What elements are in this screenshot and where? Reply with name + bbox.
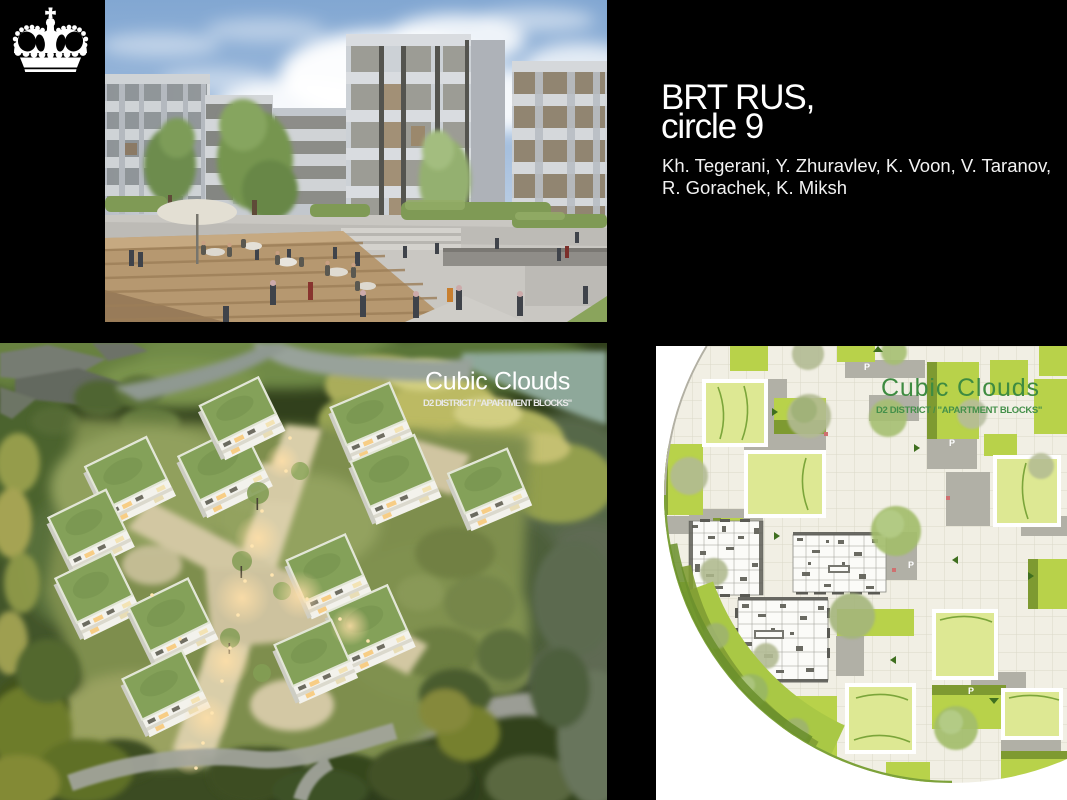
svg-text:Cubic Clouds: Cubic Clouds <box>425 368 570 396</box>
svg-text:P: P <box>864 362 870 372</box>
svg-text:Cubic Clouds: Cubic Clouds <box>881 374 1040 402</box>
svg-text:P: P <box>949 438 955 448</box>
svg-text:P: P <box>908 560 914 570</box>
svg-text:D2 DISTRICT / "APARTMENT BLOCK: D2 DISTRICT / "APARTMENT BLOCKS" <box>423 398 572 409</box>
svg-text:P: P <box>968 686 974 696</box>
svg-text:D2 DISTRICT / "APARTMENT BLOCK: D2 DISTRICT / "APARTMENT BLOCKS" <box>876 405 1042 416</box>
